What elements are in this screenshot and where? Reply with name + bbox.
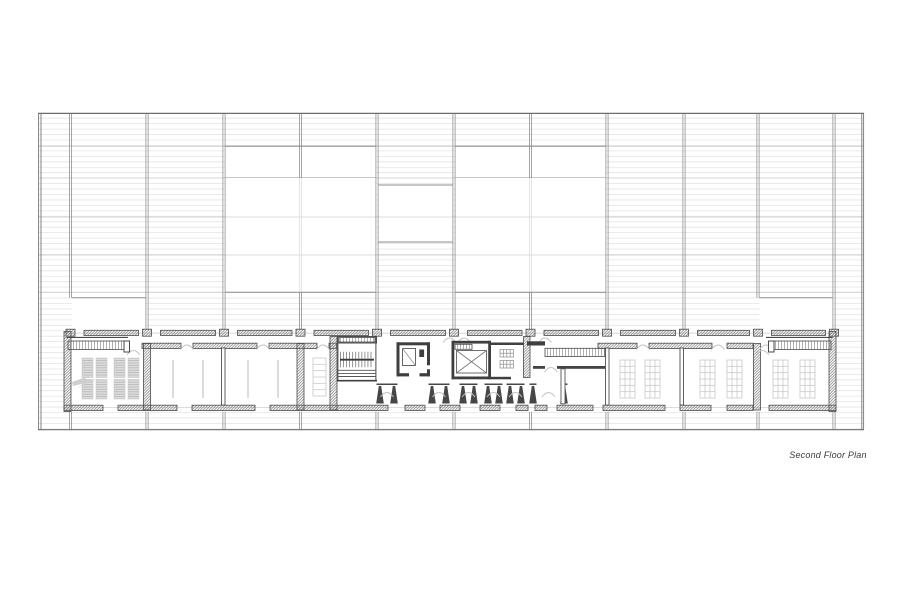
drawing-sheet: Second Floor Plan bbox=[0, 0, 905, 603]
drawing-caption: Second Floor Plan bbox=[780, 449, 876, 462]
floor-plan-band bbox=[64, 329, 839, 411]
floor-plan-drawing bbox=[0, 0, 905, 603]
